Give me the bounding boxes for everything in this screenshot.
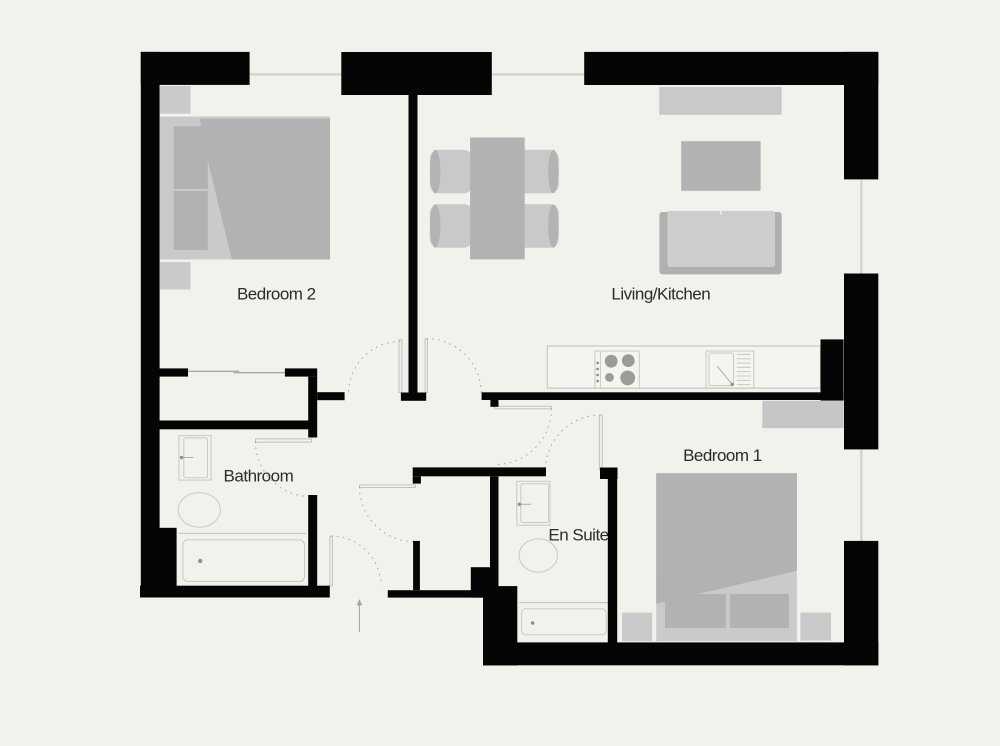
svg-text:Bedroom 2: Bedroom 2 [237,285,316,304]
svg-text:En Suite: En Suite [548,526,608,545]
svg-text:Bathroom: Bathroom [224,467,294,486]
svg-text:Living/Kitchen: Living/Kitchen [611,284,710,303]
svg-text:Bedroom 1: Bedroom 1 [683,446,762,465]
